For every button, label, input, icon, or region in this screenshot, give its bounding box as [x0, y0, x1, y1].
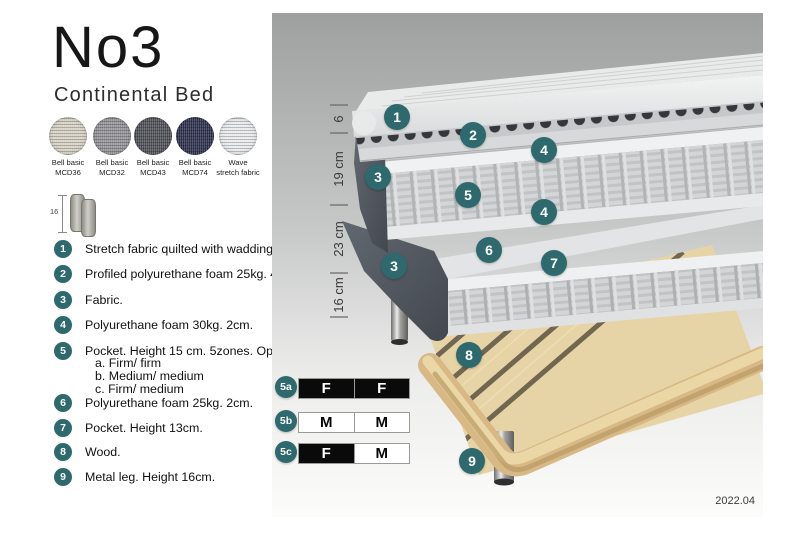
legend-item-6: 6Polyurethane foam 25kg. 2cm.: [54, 394, 253, 412]
dim-base: 23 cm: [331, 221, 346, 256]
swatch-label: Wavestretch fabric: [215, 158, 261, 178]
firmness-cell: F: [299, 444, 354, 463]
legend-item-1: 1Stretch fabric quilted with wadding.: [54, 240, 276, 258]
legend-badge: 4: [54, 316, 72, 334]
legend-text: Polyurethane foam 30kg. 2cm.: [85, 318, 253, 332]
firmness-cell: F: [299, 379, 354, 398]
legend-badge: 2: [54, 265, 72, 283]
firmness-bar-5b: M M: [298, 412, 410, 433]
callout-7-base-pocket: 7: [541, 250, 567, 276]
dimension-tick: [58, 195, 67, 196]
legend-item-5: 5Pocket. Height 15 cm. 5zones. Option:: [54, 342, 296, 360]
fabric-swatch-mcd74: [176, 117, 214, 155]
callout-2-profiled-foam: 2: [460, 122, 486, 148]
fabric-swatch-wave: [219, 117, 257, 155]
legend-badge: 9: [54, 468, 72, 486]
page-subtitle: Continental Bed: [54, 84, 214, 107]
fabric-texture: [176, 117, 214, 155]
page-title: No3: [52, 18, 164, 79]
legend-badge: 7: [54, 419, 72, 437]
legend-option-b: b. Medium/ medium: [95, 369, 204, 383]
legend-text: Stretch fabric quilted with wadding.: [85, 242, 276, 256]
callout-1-topper: 1: [384, 104, 410, 130]
legend-text: Metal leg. Height 16cm.: [85, 470, 215, 484]
dim-legs: 16 cm: [331, 277, 346, 312]
legend-badge: 6: [54, 394, 72, 412]
legend-badge: 3: [54, 291, 72, 309]
legend-text: Profiled polyurethane foam 25kg. 4cm.: [85, 267, 297, 281]
leg-height-icon: 16: [50, 190, 104, 240]
callout-8-wood: 8: [456, 342, 482, 368]
legend-badge: 8: [54, 443, 72, 461]
firmness-row-label-5c: 5c: [275, 441, 297, 463]
bed-cutaway-panel: 6 19 cm 23 cm 16 cm 1 2 3 4 5 4 6 7 3 8 …: [272, 13, 763, 517]
swatch-label: Bell basicMCD36: [45, 158, 91, 178]
firmness-cell: M: [299, 413, 354, 432]
legend-item-8: 8Wood.: [54, 443, 121, 461]
dim-topper: 6: [331, 115, 346, 122]
legend-item-4: 4Polyurethane foam 30kg. 2cm.: [54, 316, 253, 334]
dimension-line: [62, 195, 63, 233]
version-stamp: 2022.04: [715, 495, 755, 507]
fabric-swatch-mcd36: [49, 117, 87, 155]
legend-badge: 5: [54, 342, 72, 360]
legend-text: Pocket. Height 13cm.: [85, 421, 203, 435]
fabric-swatch-mcd32: [93, 117, 131, 155]
callout-3-fabric-lower: 3: [381, 253, 407, 279]
callout-9-metal-leg: 9: [459, 448, 485, 474]
leg-height-value: 16: [50, 207, 58, 216]
callout-4-foam-lower: 4: [531, 199, 557, 225]
legend-item-9: 9Metal leg. Height 16cm.: [54, 468, 215, 486]
fabric-swatch-mcd43: [134, 117, 172, 155]
legend-item-2: 2Profiled polyurethane foam 25kg. 4cm.: [54, 265, 297, 283]
firmness-row-label-5a: 5a: [275, 376, 297, 398]
fabric-texture: [93, 117, 131, 155]
dimension-tick: [58, 232, 67, 233]
callout-4-foam-upper: 4: [531, 137, 557, 163]
legend-text: Polyurethane foam 25kg. 2cm.: [85, 396, 253, 410]
leg-cylinder: [81, 199, 96, 237]
fabric-texture: [219, 117, 257, 155]
callout-5-pocket: 5: [455, 182, 481, 208]
callout-6-base-foam: 6: [476, 237, 502, 263]
fabric-texture: [49, 117, 87, 155]
legend-option-a: a. Firm/ firm: [95, 356, 161, 370]
legend-badge: 1: [54, 240, 72, 258]
legend-text: Fabric.: [85, 293, 123, 307]
firmness-cell: M: [355, 444, 410, 463]
callout-3-fabric-upper: 3: [365, 164, 391, 190]
legend-item-7: 7Pocket. Height 13cm.: [54, 419, 203, 437]
topper-rounded-corner: [352, 111, 376, 135]
fabric-texture: [134, 117, 172, 155]
firmness-bar-5c: F M: [298, 443, 410, 464]
legend-text: Wood.: [85, 445, 121, 459]
firmness-bar-5a: F F: [298, 378, 410, 399]
legend-item-3: 3Fabric.: [54, 291, 123, 309]
swatch-label: Bell basicMCD32: [89, 158, 135, 178]
firmness-row-label-5b: 5b: [275, 410, 297, 432]
firmness-cell: F: [355, 379, 410, 398]
dim-mattress: 19 cm: [331, 151, 346, 186]
firmness-cell: M: [355, 413, 410, 432]
swatch-label: Bell basicMCD43: [130, 158, 176, 178]
swatch-label: Bell basicMCD74: [172, 158, 218, 178]
bed-cutaway-illustration: 6 19 cm 23 cm 16 cm: [272, 13, 763, 517]
